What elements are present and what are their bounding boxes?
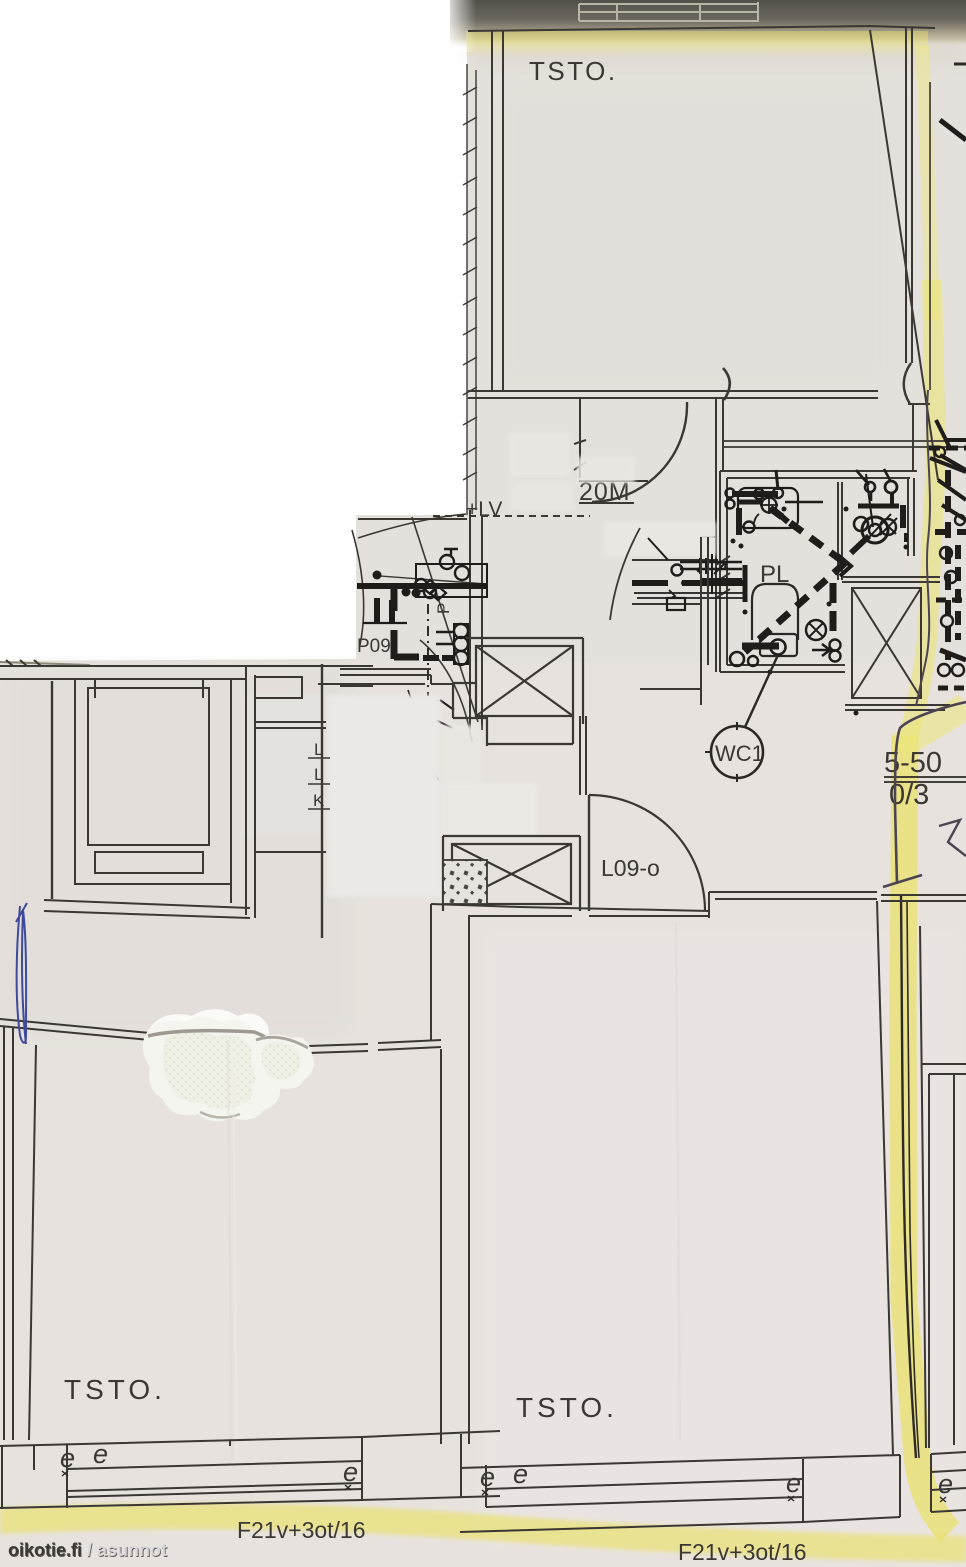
svg-text:P: P xyxy=(434,603,453,614)
svg-text:TSTO.: TSTO. xyxy=(529,56,618,86)
svg-text:e: e xyxy=(513,1459,528,1489)
svg-text:WC1: WC1 xyxy=(715,741,764,766)
svg-text:L09-o: L09-o xyxy=(601,855,660,881)
svg-text:TSTO.: TSTO. xyxy=(516,1392,618,1423)
svg-text:TSTO.: TSTO. xyxy=(64,1374,166,1405)
svg-text:P09: P09 xyxy=(357,636,391,657)
svg-text:K: K xyxy=(313,791,325,810)
svg-text:e: e xyxy=(786,1468,801,1498)
svg-text:oikotie.fi / asunnot: oikotie.fi / asunnot xyxy=(8,1540,167,1560)
svg-text:PL: PL xyxy=(760,561,789,588)
svg-text:L: L xyxy=(314,740,323,759)
svg-text:5-50: 5-50 xyxy=(884,747,942,779)
svg-text:e: e xyxy=(93,1439,108,1469)
svg-text:L: L xyxy=(314,765,323,784)
svg-text:+LV: +LV xyxy=(466,498,502,521)
svg-text:e: e xyxy=(938,1469,953,1499)
svg-text:e: e xyxy=(343,1457,358,1487)
svg-text:F21v+3ot/16: F21v+3ot/16 xyxy=(678,1539,807,1565)
svg-text:e: e xyxy=(60,1443,75,1473)
svg-text:F21v+3ot/16: F21v+3ot/16 xyxy=(237,1517,366,1543)
svg-text:e: e xyxy=(480,1462,495,1492)
